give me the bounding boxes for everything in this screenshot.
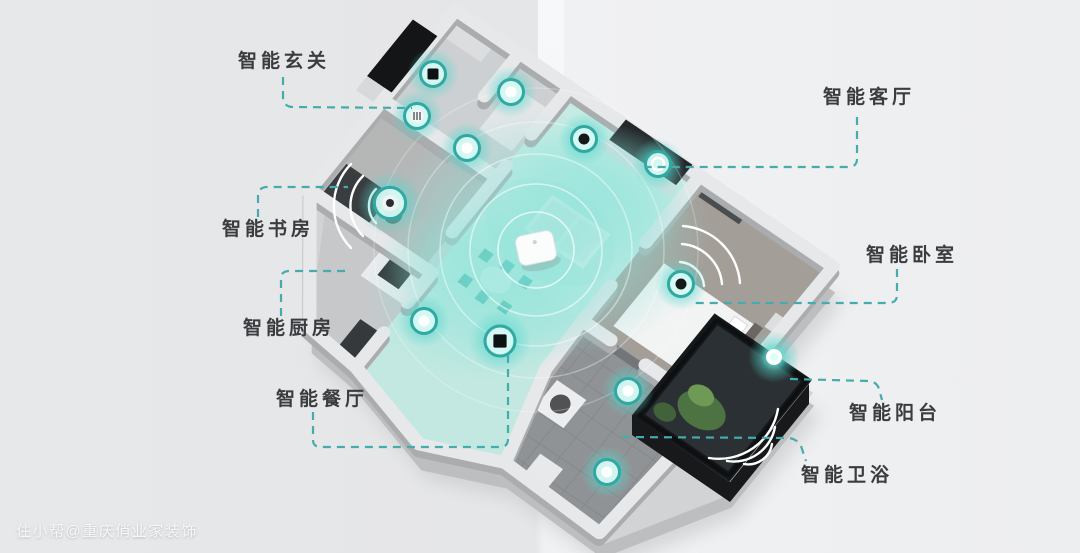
living-room-ceiling-light-icon <box>558 113 610 165</box>
living-room-wall-sensor-icon <box>632 138 684 190</box>
robot-vacuum-dock-icon <box>469 310 531 372</box>
room-label-study: 智能书房 <box>222 220 314 239</box>
room-label-bedroom: 智能卧室 <box>866 246 958 265</box>
bathroom-device-icon <box>581 446 633 498</box>
watermark: 住小帮@重庆俏业家装饰 <box>16 520 198 541</box>
entrance-ceiling-light-icon <box>485 66 537 118</box>
room-label-balcony: 智能阳台 <box>849 404 941 423</box>
room-label-living: 智能客厅 <box>823 88 915 107</box>
room-label-entrance: 智能玄关 <box>238 52 330 71</box>
hallway-light-icon <box>441 122 493 174</box>
room-label-kitchen: 智能厨房 <box>243 319 335 338</box>
bathroom-light-icon <box>602 365 654 417</box>
entrance-air-panel-icon <box>391 90 443 142</box>
floorplan-illustration <box>0 0 1080 553</box>
smart-home-diagram: 智能玄关 智能客厅 智能书房 智能卧室 智能厨房 智能餐厅 智能阳台 智能卫浴 … <box>0 0 1080 553</box>
kitchen-light-icon <box>398 295 450 347</box>
room-label-dining: 智能餐厅 <box>276 390 368 409</box>
room-label-bathroom: 智能卫浴 <box>801 466 893 485</box>
balcony-light-icon <box>748 331 800 383</box>
study-speaker-camera-icon <box>358 171 423 236</box>
